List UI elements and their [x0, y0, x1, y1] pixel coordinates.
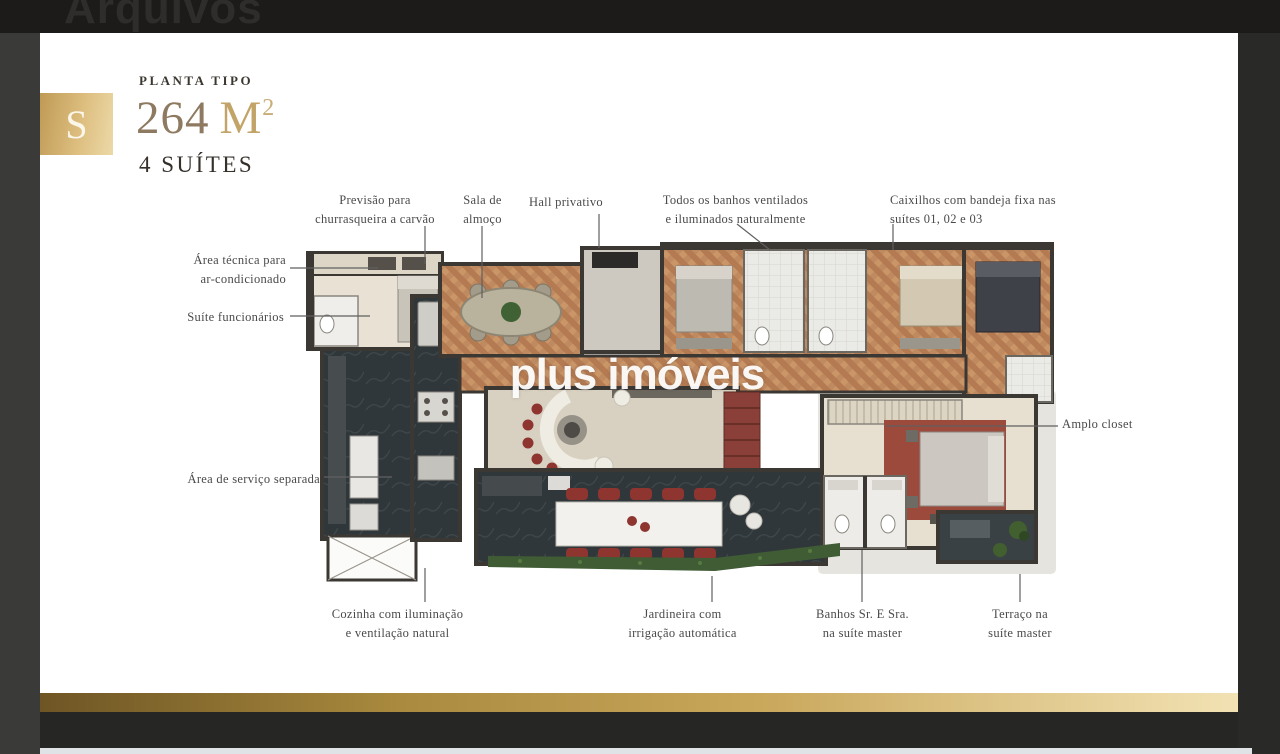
callout-area-tecnica: Área técnica para ar-condicionado: [160, 251, 286, 289]
screen: Arquivos S PLANTA TIPO 264M2 4 SUÍTES: [0, 0, 1280, 754]
app-header: Arquivos: [0, 0, 1280, 36]
callout-jardineira: Jardineira com irrigação automática: [595, 605, 770, 643]
gold-accent-bar: [40, 693, 1238, 712]
left-panel-edge: [0, 33, 40, 754]
callout-suite-funcionarios: Suíte funcionários: [150, 308, 284, 327]
service-terrace-hatch: [328, 536, 416, 580]
room-area-servico: [322, 349, 416, 539]
right-panel-edge: [1238, 33, 1280, 754]
floorplan-card[interactable]: S PLANTA TIPO 264M2 4 SUÍTES: [40, 33, 1238, 693]
room-suite-03: [964, 248, 1052, 402]
callout-terraco-master: Terraço na suíte master: [955, 605, 1085, 643]
room-banhos-master: [824, 476, 906, 548]
room-sala-almoco: [440, 264, 582, 356]
room-terraco-master: [938, 512, 1036, 562]
room-gourmet: [476, 470, 826, 564]
watermark: plus imóveis: [457, 350, 817, 400]
callout-banhos-master: Banhos Sr. E Sra. na suíte master: [785, 605, 940, 643]
header-title: Arquivos: [64, 0, 263, 34]
callout-hall-privativo: Hall privativo: [505, 193, 627, 212]
callout-amplo-closet: Amplo closet: [1062, 415, 1182, 434]
bottom-light-strip: [40, 748, 1252, 754]
callout-caixilhos: Caixilhos com bandeja fixa nas suítes 01…: [890, 191, 1115, 229]
callout-cozinha: Cozinha com iluminação e ventilação natu…: [300, 605, 495, 643]
room-hall-privativo: [582, 248, 662, 352]
callout-area-servico: Área de serviço separada: [150, 470, 320, 489]
callout-banhos-ventilados: Todos os banhos ventilados e iluminados …: [628, 191, 843, 229]
room-living: [486, 388, 760, 482]
